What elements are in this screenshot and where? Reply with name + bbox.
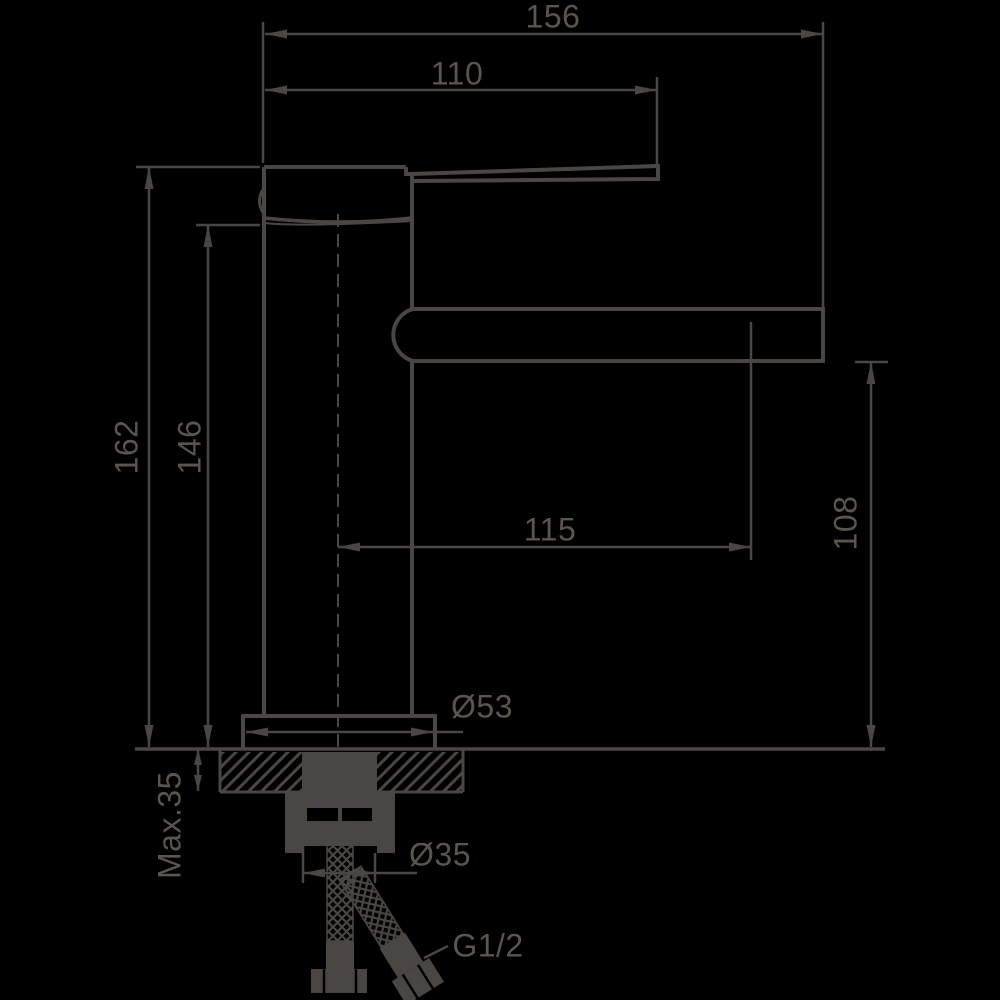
mounting-washer <box>285 791 395 799</box>
arrow <box>265 86 287 95</box>
dim-label-108: 108 <box>828 496 865 551</box>
nut-foot-left <box>285 846 303 853</box>
mounting-nut <box>285 799 395 846</box>
dim-label-110: 110 <box>431 56 484 93</box>
mounting-hardware <box>285 791 395 853</box>
dim-label-dia53: Ø53 <box>451 689 513 726</box>
nut-slot-right <box>342 808 372 821</box>
arrow <box>303 869 325 878</box>
arrow <box>204 725 213 747</box>
head-top <box>264 167 412 174</box>
counter-hatch-left <box>220 752 302 791</box>
arrow <box>867 725 876 747</box>
arrow <box>729 543 751 552</box>
arrow <box>265 30 287 39</box>
dim-label-g12: G1/2 <box>452 928 523 965</box>
technical-drawing-canvas: 156 110 162 146 115 108 Ø53 Max.35 Ø35 G… <box>0 0 1000 1000</box>
dim-label-146: 146 <box>172 420 209 475</box>
vertical-fitting <box>326 941 354 969</box>
faucet-outline <box>243 166 823 750</box>
arrow <box>635 86 657 95</box>
arrow <box>145 167 154 189</box>
arrow <box>145 725 154 747</box>
counter-hatch-right <box>377 752 463 791</box>
countertop <box>135 749 885 792</box>
leader-g12 <box>424 946 448 958</box>
arrow <box>867 362 876 384</box>
faucet-shank <box>302 752 377 792</box>
dim-label-156: 156 <box>526 0 581 36</box>
handle-lever <box>412 166 658 181</box>
dimension-lines <box>136 22 888 958</box>
dim-label-162: 162 <box>109 420 146 475</box>
spout-rounded-end <box>393 309 413 361</box>
nut-slot-left <box>307 808 338 821</box>
spout <box>413 309 823 361</box>
nut-foot-right <box>377 846 395 853</box>
arrow <box>194 749 202 765</box>
arrow <box>338 543 360 552</box>
arrow <box>204 225 213 247</box>
arrow <box>411 728 433 737</box>
arrow <box>801 30 823 39</box>
vertical-braid <box>327 840 353 941</box>
dim-label-max35: Max.35 <box>152 771 189 879</box>
arrow <box>246 728 268 737</box>
vertical-hex-nut <box>311 969 367 993</box>
arrow <box>194 775 202 791</box>
dim-label-dia35: Ø35 <box>409 837 471 874</box>
dim-label-115: 115 <box>524 512 577 549</box>
